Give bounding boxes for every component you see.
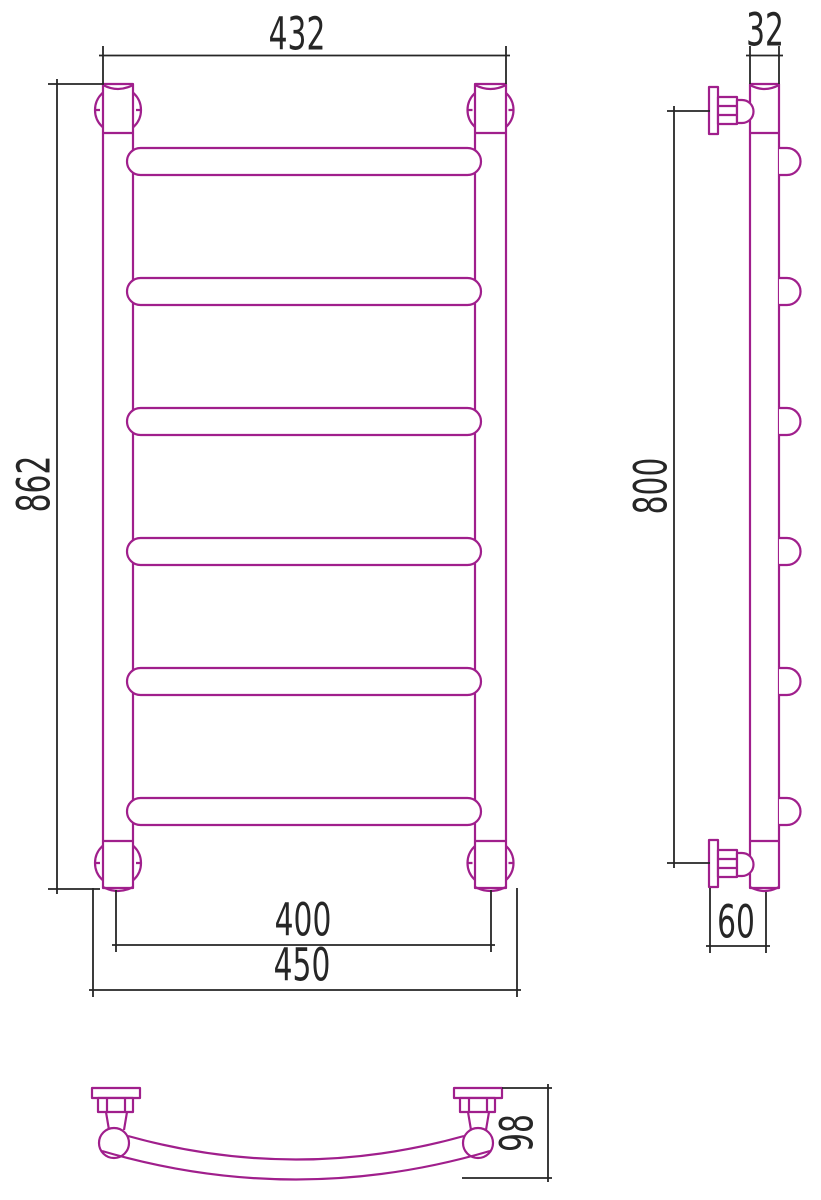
rung <box>127 148 481 175</box>
bracket-nut <box>460 1098 495 1112</box>
dim-rail-depth-label: 98 <box>491 1114 543 1152</box>
bracket-nut <box>718 97 737 124</box>
bracket-flange <box>454 1088 502 1098</box>
rung-end <box>779 668 801 695</box>
rung <box>127 668 481 695</box>
dim-overall-width-label: 450 <box>274 939 331 991</box>
front-view <box>95 84 514 891</box>
dim-mount-height-label: 800 <box>625 458 677 515</box>
rung <box>127 538 481 565</box>
rung-outer-arc <box>102 1151 490 1180</box>
wall-bracket-top <box>709 87 754 134</box>
bracket-arm <box>737 100 754 123</box>
rung-inner-arc <box>128 1136 464 1160</box>
rung-end <box>779 798 801 825</box>
rung-end <box>779 278 801 305</box>
wall-bracket-bottom <box>709 840 754 887</box>
right-pipe <box>475 84 506 888</box>
drawing-svg: 432 862 400 450 32 800 60 98 <box>0 0 821 1200</box>
rung-end <box>779 408 800 435</box>
left-pipe <box>103 84 133 888</box>
bracket-flange <box>709 840 718 887</box>
dim-top-width-label: 432 <box>269 8 326 60</box>
bracket-nut <box>98 1098 133 1112</box>
dim-pipe-width-label: 32 <box>746 4 784 56</box>
collar-joint-lines <box>103 133 506 841</box>
bracket-nut <box>718 850 737 877</box>
dim-wall-depth-label: 60 <box>717 896 755 948</box>
rung-end <box>779 538 801 565</box>
bracket-flange <box>92 1088 140 1098</box>
bracket-flange <box>709 87 718 134</box>
rung-end <box>779 148 801 175</box>
pipe <box>750 84 779 888</box>
top-view <box>92 1088 502 1180</box>
rung <box>127 798 481 825</box>
side-view <box>709 84 801 891</box>
technical-drawing: 432 862 400 450 32 800 60 98 <box>0 0 821 1200</box>
rung <box>127 408 481 435</box>
rung <box>127 278 481 305</box>
bracket-center-ticks <box>95 110 514 863</box>
dim-height-label: 862 <box>8 456 60 513</box>
bracket-arm <box>737 853 754 876</box>
